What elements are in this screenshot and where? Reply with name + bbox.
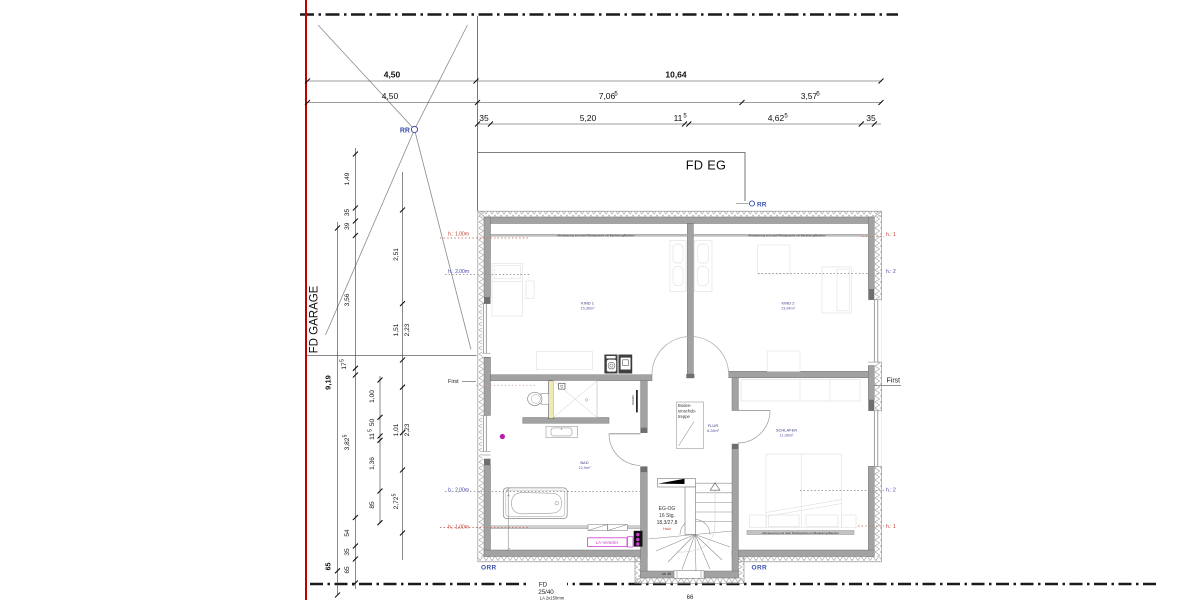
svg-text:Abmauerung erst nach Rücksprac: Abmauerung erst nach Rücksprache mit Bau… (762, 531, 839, 535)
svg-text:h.: 1: h.: 1 (886, 232, 896, 238)
svg-text:3,82: 3,82 (344, 437, 351, 450)
svg-text:35: 35 (866, 113, 876, 123)
svg-text:KIND 2: KIND 2 (782, 300, 796, 305)
svg-text:1,51: 1,51 (393, 323, 400, 336)
svg-text:85: 85 (369, 501, 376, 509)
svg-text:BAD: BAD (580, 460, 588, 465)
svg-text:5: 5 (343, 434, 349, 437)
svg-text:FD GARAGE: FD GARAGE (309, 285, 321, 353)
svg-text:11,96m²: 11,96m² (780, 434, 794, 438)
svg-text:65: 65 (344, 566, 351, 574)
svg-text:h.: 2: h.: 2 (886, 269, 896, 275)
svg-text:Holz: Holz (663, 526, 671, 531)
svg-text:4,50: 4,50 (382, 91, 399, 101)
svg-text:einschub-: einschub- (678, 409, 697, 414)
svg-text:35: 35 (344, 548, 351, 556)
svg-text:treppe: treppe (678, 414, 691, 419)
svg-text:2,51: 2,51 (393, 248, 400, 261)
svg-text:16 Stg.: 16 Stg. (659, 513, 675, 519)
svg-text:SCHLAFEN: SCHLAFEN (776, 428, 797, 433)
svg-text:1,49: 1,49 (344, 172, 351, 185)
svg-text:FLUR: FLUR (708, 423, 719, 428)
svg-text:17: 17 (341, 362, 348, 370)
svg-text:ORR: ORR (752, 565, 768, 572)
svg-text:h.: 1: h.: 1 (886, 524, 896, 530)
svg-text:66: 66 (687, 595, 694, 600)
svg-text:LA 2x150mm: LA 2x150mm (540, 596, 565, 600)
svg-text:3,57: 3,57 (801, 91, 818, 101)
svg-text:h.: 2,00m: h.: 2,00m (448, 487, 469, 493)
svg-text:KOMM: KOMM (631, 395, 635, 405)
svg-text:ORR: ORR (481, 565, 497, 572)
svg-text:RR: RR (757, 201, 767, 208)
svg-text:FD: FD (539, 582, 548, 589)
svg-text:2,23: 2,23 (404, 423, 411, 436)
svg-text:1,00: 1,00 (369, 390, 376, 403)
svg-text:ca. 46: ca. 46 (662, 572, 671, 576)
svg-text:h.: 2,00m: h.: 2,00m (448, 269, 469, 275)
svg-text:EG-OG: EG-OG (659, 506, 676, 512)
svg-text:2,23: 2,23 (404, 323, 411, 336)
svg-text:First: First (448, 379, 459, 385)
svg-text:13,94m²: 13,94m² (781, 307, 796, 311)
svg-text:11: 11 (674, 113, 683, 123)
svg-text:65: 65 (326, 563, 333, 571)
svg-text:5,20: 5,20 (580, 113, 597, 123)
svg-text:15,36m²: 15,36m² (581, 307, 596, 311)
svg-text:FD EG: FD EG (686, 158, 727, 173)
svg-text:12,9m²: 12,9m² (579, 466, 592, 470)
svg-text:Boden-: Boden- (678, 403, 692, 408)
svg-text:1,36: 1,36 (369, 457, 376, 470)
svg-text:Abmauerung erst nach Rücksprac: Abmauerung erst nach Rücksprache mit Bau… (557, 233, 634, 237)
svg-text:1,01: 1,01 (393, 423, 400, 436)
svg-text:2,72: 2,72 (393, 496, 400, 509)
svg-text:6,26m²: 6,26m² (707, 429, 720, 433)
svg-text:5: 5 (392, 493, 398, 496)
svg-text:11: 11 (369, 433, 376, 440)
svg-text:10,64: 10,64 (665, 70, 687, 80)
svg-text:5: 5 (368, 429, 374, 432)
svg-text:KIND 1: KIND 1 (581, 300, 595, 305)
svg-text:9,19: 9,19 (324, 375, 333, 390)
svg-text:4,50: 4,50 (384, 70, 401, 80)
svg-text:39: 39 (344, 222, 351, 230)
svg-text:h.: 2: h.: 2 (886, 487, 896, 493)
svg-text:Abmauerung erst nach Rücksprac: Abmauerung erst nach Rücksprache mit Bau… (748, 233, 825, 237)
svg-text:h.: 1,00m: h.: 1,00m (448, 231, 469, 237)
svg-text:3,56: 3,56 (344, 293, 351, 306)
svg-text:35: 35 (479, 113, 489, 123)
svg-text:RR: RR (400, 127, 410, 134)
svg-text:LA-Verteiler: LA-Verteiler (596, 540, 619, 545)
svg-text:7,06: 7,06 (599, 91, 616, 101)
svg-text:50: 50 (369, 419, 376, 427)
svg-text:First: First (887, 378, 901, 385)
svg-text:4,62: 4,62 (768, 113, 785, 123)
svg-text:35: 35 (344, 209, 351, 217)
svg-text:5: 5 (340, 359, 346, 362)
svg-text:54: 54 (344, 529, 351, 537)
